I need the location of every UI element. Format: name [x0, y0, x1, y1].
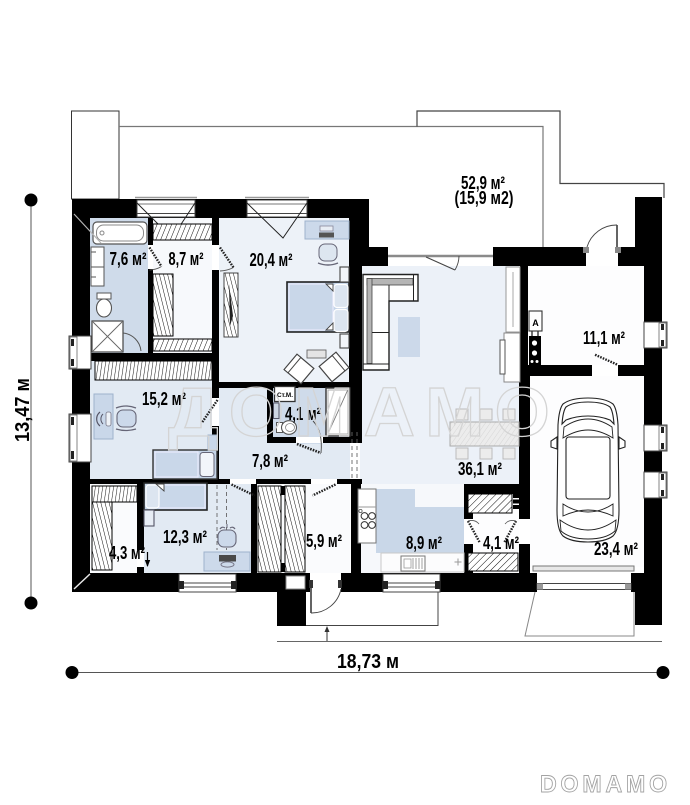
svg-text:DOMAMO: DOMAMO	[540, 771, 671, 798]
svg-text:20,4 м²: 20,4 м²	[250, 250, 293, 270]
svg-text:23,4 м²: 23,4 м²	[594, 539, 638, 559]
svg-text:7,6 м²: 7,6 м²	[110, 249, 147, 269]
svg-text:A: A	[532, 318, 539, 328]
svg-text:4,3 м²: 4,3 м²	[109, 543, 145, 563]
svg-text:8,9 м²: 8,9 м²	[406, 533, 442, 553]
svg-text:11,1 м²: 11,1 м²	[583, 328, 625, 348]
svg-text:7,8 м²: 7,8 м²	[252, 451, 288, 471]
svg-text:5,9 м²: 5,9 м²	[306, 531, 342, 551]
svg-text:36,1 м²: 36,1 м²	[458, 459, 502, 479]
svg-text:4,1 м²: 4,1 м²	[483, 533, 519, 553]
svg-text:8,7 м²: 8,7 м²	[169, 249, 204, 269]
svg-text:13,47 м: 13,47 м	[12, 378, 34, 442]
svg-text:12,3 м²: 12,3 м²	[163, 527, 207, 547]
svg-text:ДОМАМО: ДОМАМО	[168, 373, 560, 451]
svg-text:(15,9 м2): (15,9 м2)	[455, 188, 514, 208]
svg-text:18,73 м: 18,73 м	[337, 651, 399, 673]
